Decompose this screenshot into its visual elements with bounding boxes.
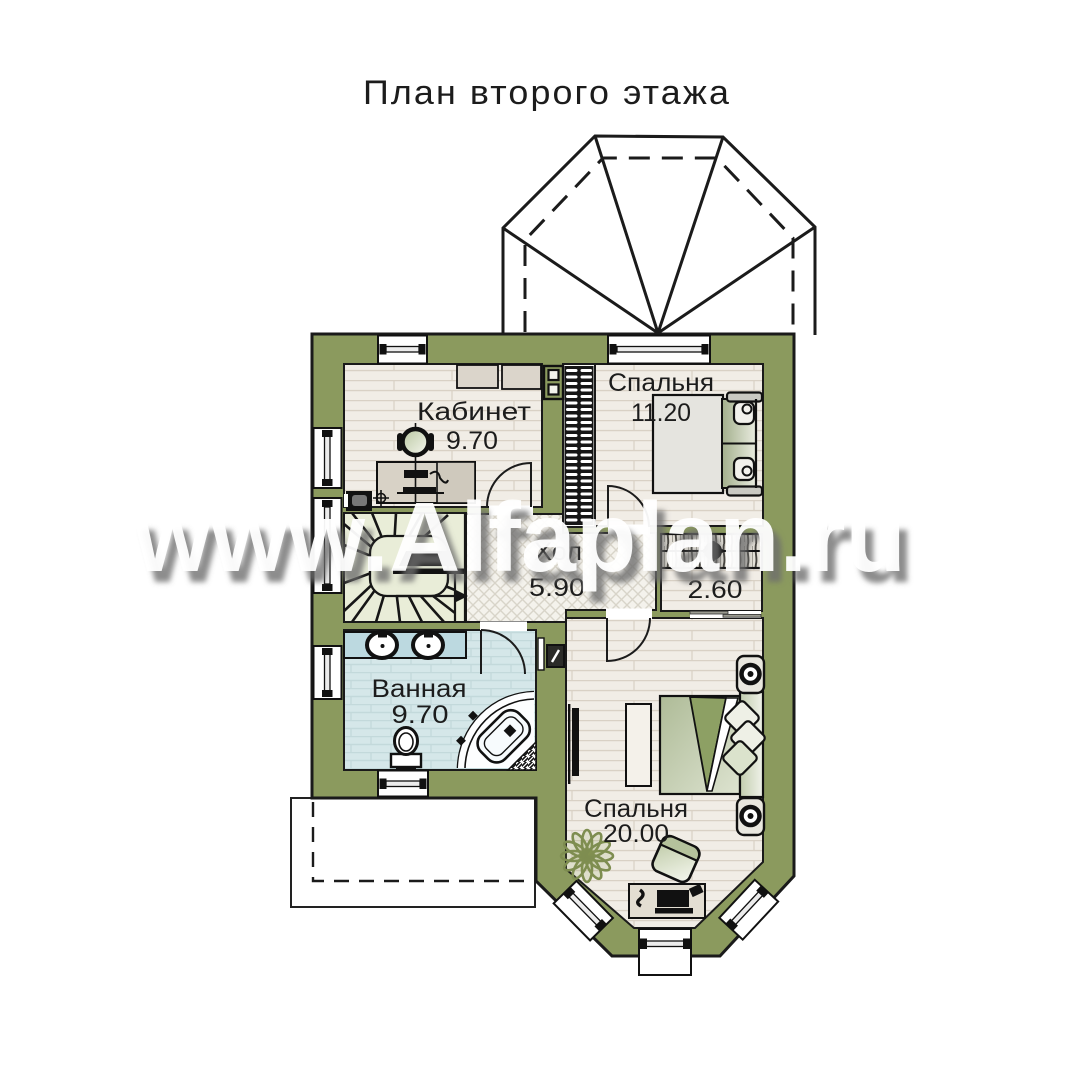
svg-text:9.70: 9.70 [446,427,498,455]
svg-text:Кабинет: Кабинет [417,398,532,426]
svg-text:Спальня: Спальня [584,795,688,823]
svg-text:20.00: 20.00 [603,820,669,848]
svg-text:Спальня: Спальня [608,369,714,397]
svg-text:www.Alfaplan.ru: www.Alfaplan.ru [133,482,906,592]
svg-text:11.20: 11.20 [631,399,691,427]
svg-text:Ванная: Ванная [372,675,467,703]
svg-text:9.70: 9.70 [392,701,449,729]
svg-text:План второго этажа: План второго этажа [363,74,731,112]
